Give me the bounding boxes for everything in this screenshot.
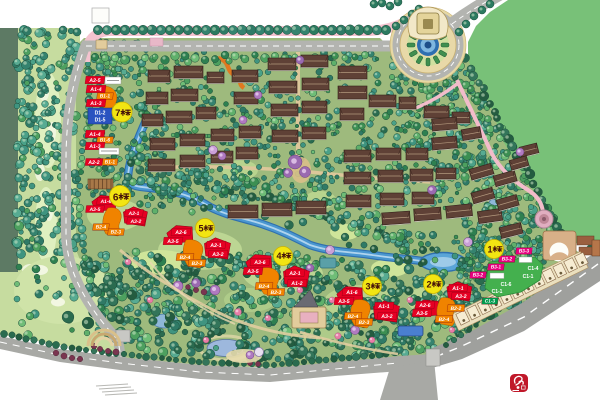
svg-text:7: 7: [115, 108, 120, 119]
svg-text:A3-5: A3-5: [167, 239, 179, 245]
svg-text:A1-1: A1-1: [452, 286, 464, 292]
svg-text:A1-4: A1-4: [90, 87, 102, 93]
svg-text:A3-2: A3-2: [381, 314, 393, 320]
svg-text:A3-5: A3-5: [338, 299, 350, 305]
svg-text:C1-1: C1-1: [523, 274, 534, 280]
svg-text:B2-3: B2-3: [358, 320, 370, 326]
svg-text:A1-1: A1-1: [378, 304, 390, 310]
svg-text:B1-1: B1-1: [104, 160, 116, 166]
svg-text:A3-2: A3-2: [455, 294, 467, 300]
svg-text:A1-3: A1-3: [90, 101, 102, 107]
svg-text:A2-1: A2-1: [128, 211, 140, 217]
svg-text:C1-4: C1-4: [528, 266, 539, 272]
svg-text:A3-5: A3-5: [247, 269, 259, 275]
svg-text:B3-1: B3-1: [490, 265, 502, 271]
svg-text:A3-2: A3-2: [130, 219, 142, 225]
svg-text:B2-4: B2-4: [95, 225, 107, 231]
svg-text:A2-1: A2-1: [210, 243, 222, 249]
svg-text:A2-1: A2-1: [289, 271, 301, 277]
svg-text:2: 2: [426, 279, 431, 289]
svg-text:B3-3: B3-3: [518, 249, 530, 255]
svg-text:A3-5: A3-5: [416, 311, 428, 317]
svg-text:A2-2: A2-2: [88, 160, 100, 166]
svg-text:A1-2: A1-2: [291, 281, 303, 287]
svg-text:C1-3: C1-3: [484, 299, 496, 305]
svg-text:A2-5: A2-5: [89, 78, 101, 84]
svg-text:B3-2: B3-2: [501, 257, 513, 263]
svg-text:A2-6: A2-6: [175, 230, 187, 236]
svg-text:D1-5: D1-5: [95, 118, 106, 124]
svg-text:A3-5: A3-5: [89, 207, 101, 213]
svg-text:B2-4: B2-4: [438, 317, 450, 323]
svg-text:B2-3: B2-3: [191, 261, 203, 267]
svg-text:3: 3: [365, 281, 370, 291]
svg-text:A2-6: A2-6: [419, 303, 431, 309]
svg-text:D1-2: D1-2: [95, 111, 106, 117]
svg-text:C1-6: C1-6: [501, 282, 512, 288]
svg-text:C1-1: C1-1: [492, 289, 503, 295]
svg-text:A3-6: A3-6: [254, 260, 266, 266]
svg-text:4: 4: [276, 251, 281, 261]
svg-text:B2-2: B2-2: [450, 306, 462, 312]
svg-text:B2-3: B2-3: [270, 290, 282, 296]
svg-text:B1-1: B1-1: [99, 94, 111, 100]
svg-text:A3-2: A3-2: [212, 252, 224, 258]
svg-text:6: 6: [113, 192, 119, 203]
svg-text:A1-6: A1-6: [346, 290, 358, 296]
svg-text:B2-3: B2-3: [110, 230, 122, 236]
svg-text:1: 1: [487, 244, 492, 254]
svg-text:B3-2: B3-2: [472, 273, 484, 279]
svg-text:5: 5: [198, 223, 203, 233]
